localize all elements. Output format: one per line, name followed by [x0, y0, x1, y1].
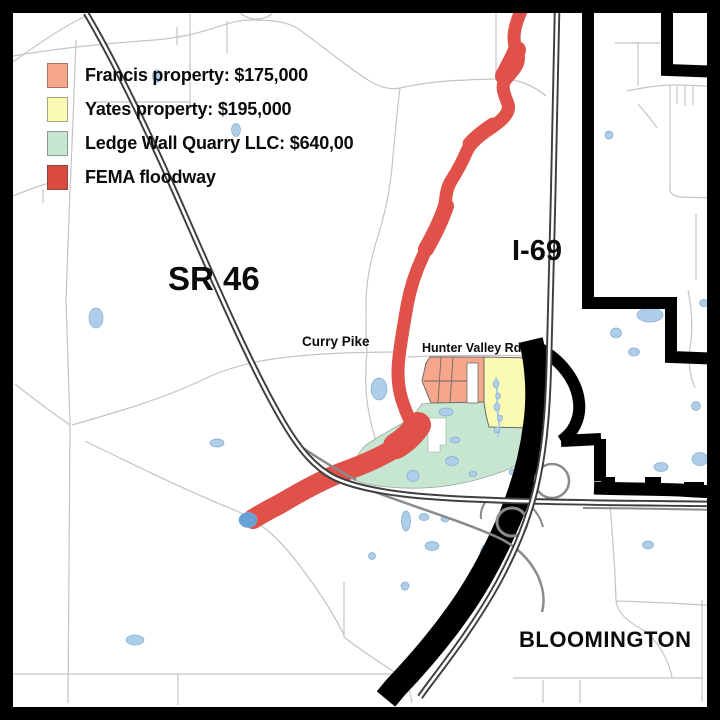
map-screenshot: Francis property: $175,000 Yates propert…	[0, 0, 720, 720]
legend-item-francis: Francis property: $175,000	[47, 63, 308, 88]
label-hunter-valley: Hunter Valley Rd	[422, 342, 521, 355]
floodway-outlet-pond	[239, 513, 257, 528]
francis-white-notch	[467, 363, 478, 403]
legend-item-floodway: FEMA floodway	[47, 165, 216, 190]
legend-swatch-floodway	[47, 165, 68, 190]
legend-item-yates: Yates property: $195,000	[47, 97, 291, 122]
label-bloomington: BLOOMINGTON	[519, 629, 692, 651]
legend-label-quarry: Ledge Wall Quarry LLC: $640,00	[85, 133, 353, 154]
legend-label-francis: Francis property: $175,000	[85, 65, 308, 86]
parcel-francis	[422, 357, 484, 403]
legend-swatch-quarry	[47, 131, 68, 156]
label-sr46: SR 46	[168, 262, 260, 295]
label-curry-pike: Curry Pike	[302, 335, 370, 349]
legend-label-yates: Yates property: $195,000	[85, 99, 291, 120]
legend-swatch-francis	[47, 63, 68, 88]
label-i69: I-69	[512, 237, 562, 266]
legend-item-quarry: Ledge Wall Quarry LLC: $640,00	[47, 131, 353, 156]
legend-swatch-yates	[47, 97, 68, 122]
legend-label-floodway: FEMA floodway	[85, 167, 216, 188]
